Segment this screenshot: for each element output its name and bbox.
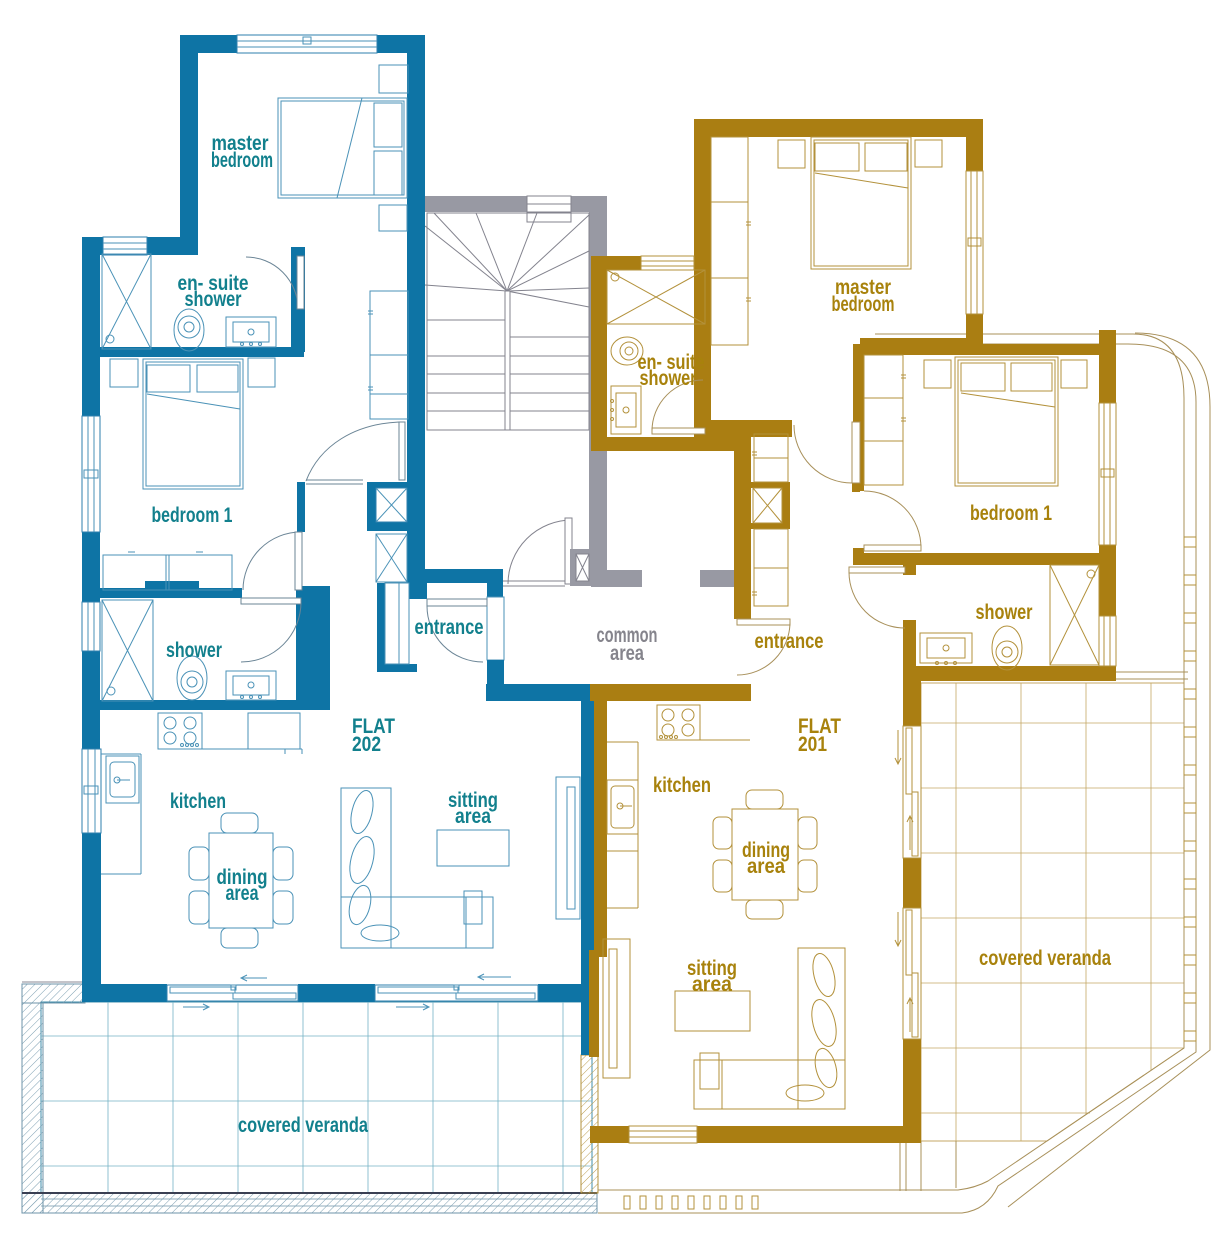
svg-text:shower: shower	[976, 601, 1033, 624]
svg-text:entrance: entrance	[755, 630, 824, 653]
svg-text:covered veranda: covered veranda	[238, 1114, 368, 1137]
svg-text:shower: shower	[640, 367, 697, 390]
svg-text:bedroom: bedroom	[832, 293, 895, 316]
svg-text:kitchen: kitchen	[170, 790, 226, 813]
svg-text:area: area	[610, 642, 644, 665]
svg-text:area: area	[226, 882, 259, 905]
svg-text:area: area	[692, 973, 732, 996]
svg-text:bedroom: bedroom	[211, 149, 273, 172]
svg-text:202: 202	[352, 733, 381, 756]
svg-text:kitchen: kitchen	[653, 774, 711, 797]
svg-text:bedroom 1: bedroom 1	[152, 504, 233, 527]
svg-text:entrance: entrance	[415, 616, 484, 639]
svg-text:covered veranda: covered veranda	[979, 947, 1111, 970]
svg-text:shower: shower	[166, 639, 222, 662]
svg-text:area: area	[455, 805, 491, 828]
svg-text:shower: shower	[185, 288, 242, 311]
svg-text:201: 201	[798, 733, 827, 756]
svg-text:area: area	[747, 855, 785, 878]
svg-text:bedroom 1: bedroom 1	[970, 502, 1052, 525]
